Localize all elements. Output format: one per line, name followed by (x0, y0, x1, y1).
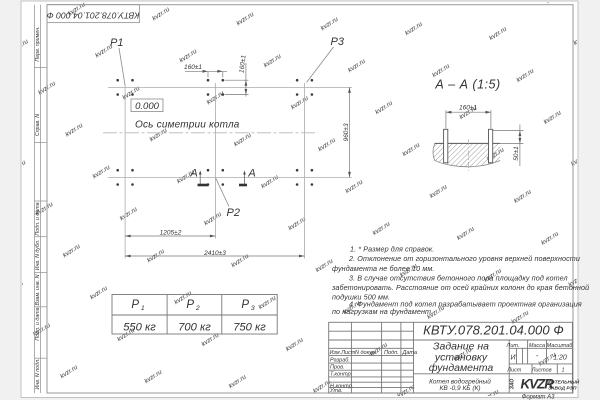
svg-text:забетонировать. Расстояние от: забетонировать. Расстояние от осей крайн… (331, 283, 589, 292)
svg-text:160±1: 160±1 (459, 104, 477, 111)
svg-text:Изм.Лист: Изм.Лист (330, 350, 356, 356)
svg-text:фундамента не более 10 мм.: фундамента не более 10 мм. (332, 264, 434, 273)
svg-text:Взам. инв. N: Взам. инв. N (35, 274, 41, 305)
svg-text:550 кг: 550 кг (123, 321, 156, 333)
svg-text:Перв. примен.: Перв. примен. (35, 26, 41, 61)
svg-text:Подп.: Подп. (384, 350, 399, 356)
svg-text:3. В случае отсутствия бетонно: 3. В случае отсутствия бетонного пола пл… (349, 273, 568, 282)
svg-text:50±1: 50±1 (513, 146, 520, 161)
svg-text:P1: P1 (110, 37, 123, 49)
svg-text:ЗАВОД РЭП: ЗАВОД РЭП (548, 386, 577, 392)
svg-text:750 кг: 750 кг (233, 321, 266, 333)
svg-text:P2: P2 (227, 207, 240, 219)
svg-text:КВТУ.078.201.04.000 Ф: КВТУ.078.201.04.000 Ф (47, 11, 140, 21)
svg-text:1. * Размер для справок.: 1. * Размер для справок. (350, 244, 434, 253)
svg-text:Масштаб: Масштаб (547, 343, 574, 349)
svg-text:2410±3: 2410±3 (203, 250, 226, 257)
svg-text:Пров.: Пров. (330, 365, 345, 371)
svg-text:по нагрузкам на фундамент.: по нагрузкам на фундамент. (332, 307, 433, 316)
svg-text:фундамента: фундамента (429, 362, 494, 374)
svg-text:1:20: 1:20 (553, 355, 567, 362)
svg-text:Разраб.: Разраб. (330, 358, 350, 364)
svg-text:700 кг: 700 кг (178, 321, 211, 333)
svg-text:N докум.: N докум. (355, 350, 377, 356)
svg-text:Лит.: Лит. (506, 343, 520, 349)
svg-text:КВ -0,9 КБ (К): КВ -0,9 КБ (К) (439, 385, 480, 392)
svg-text:Формат А3: Формат А3 (522, 394, 555, 400)
svg-text:Утв.: Утв. (329, 388, 343, 394)
svg-text:160±1: 160±1 (184, 64, 202, 71)
svg-text:Инв. N дубл.: Инв. N дубл. (35, 240, 41, 271)
svg-text:ЗАО: ЗАО (510, 379, 516, 390)
svg-text:Подп. и дата: Подп. и дата (35, 307, 41, 340)
svg-text:Ось симетрии котла: Ось симетрии котла (135, 120, 240, 131)
svg-text:Дата: Дата (402, 350, 418, 356)
svg-text:P3: P3 (331, 36, 345, 48)
svg-text:А – А (1:5): А – А (1:5) (434, 77, 500, 91)
svg-text:Т.контр.: Т.контр. (330, 372, 352, 378)
svg-text:Справ. N: Справ. N (35, 114, 41, 136)
svg-text:Подп. и дата: Подп. и дата (35, 202, 41, 235)
svg-text:КВТУ.078.201.04.000 Ф: КВТУ.078.201.04.000 Ф (423, 322, 564, 337)
svg-text:Листов: Листов (531, 368, 552, 374)
svg-text:0.000: 0.000 (135, 101, 159, 112)
svg-text:960±3: 960±3 (343, 123, 350, 141)
svg-text:Лист: Лист (506, 368, 522, 374)
svg-text:1: 1 (561, 368, 564, 374)
svg-text:А: А (247, 167, 255, 179)
svg-text:А: А (189, 167, 197, 179)
svg-text:Инв. N подл.: Инв. N подл. (35, 359, 41, 390)
svg-text:1205±2: 1205±2 (160, 230, 182, 237)
svg-text:2. Отклонение от горизонтально: 2. Отклонение от горизонтального уровня … (348, 254, 580, 263)
svg-text:Масса: Масса (529, 343, 545, 349)
